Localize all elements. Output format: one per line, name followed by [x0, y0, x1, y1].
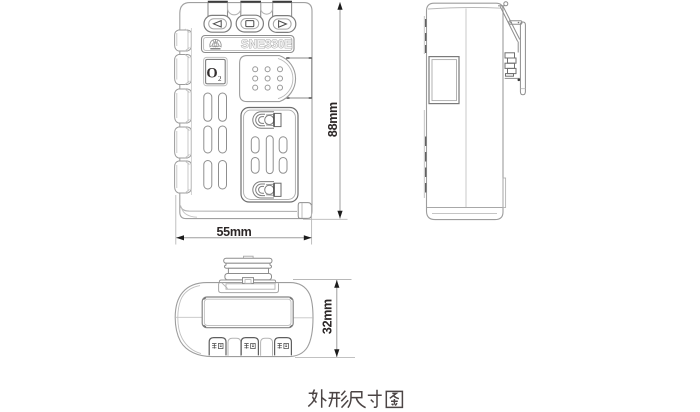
svg-text:55mm: 55mm — [217, 225, 252, 239]
svg-text:2: 2 — [218, 75, 222, 83]
svg-text:32mm: 32mm — [320, 299, 334, 334]
svg-text:88mm: 88mm — [326, 102, 340, 137]
svg-text:O: O — [206, 66, 217, 82]
svg-text:SNE330E: SNE330E — [241, 38, 293, 51]
